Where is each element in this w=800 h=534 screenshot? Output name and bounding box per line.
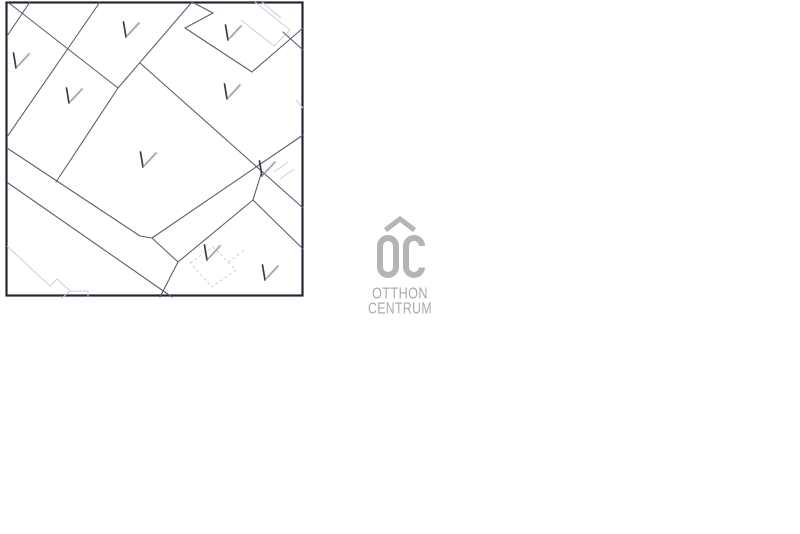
otthon-centrum-logo: OTTHON CENTRUM [358, 204, 442, 322]
logo-wordmark-line2: CENTRUM [368, 301, 432, 318]
oc-monogram-icon [380, 238, 429, 275]
cadastral-map [0, 0, 310, 302]
roof-chevron-icon [386, 219, 415, 230]
listing-image: OTTHON CENTRUM OC [0, 0, 800, 534]
map-border [7, 3, 303, 296]
